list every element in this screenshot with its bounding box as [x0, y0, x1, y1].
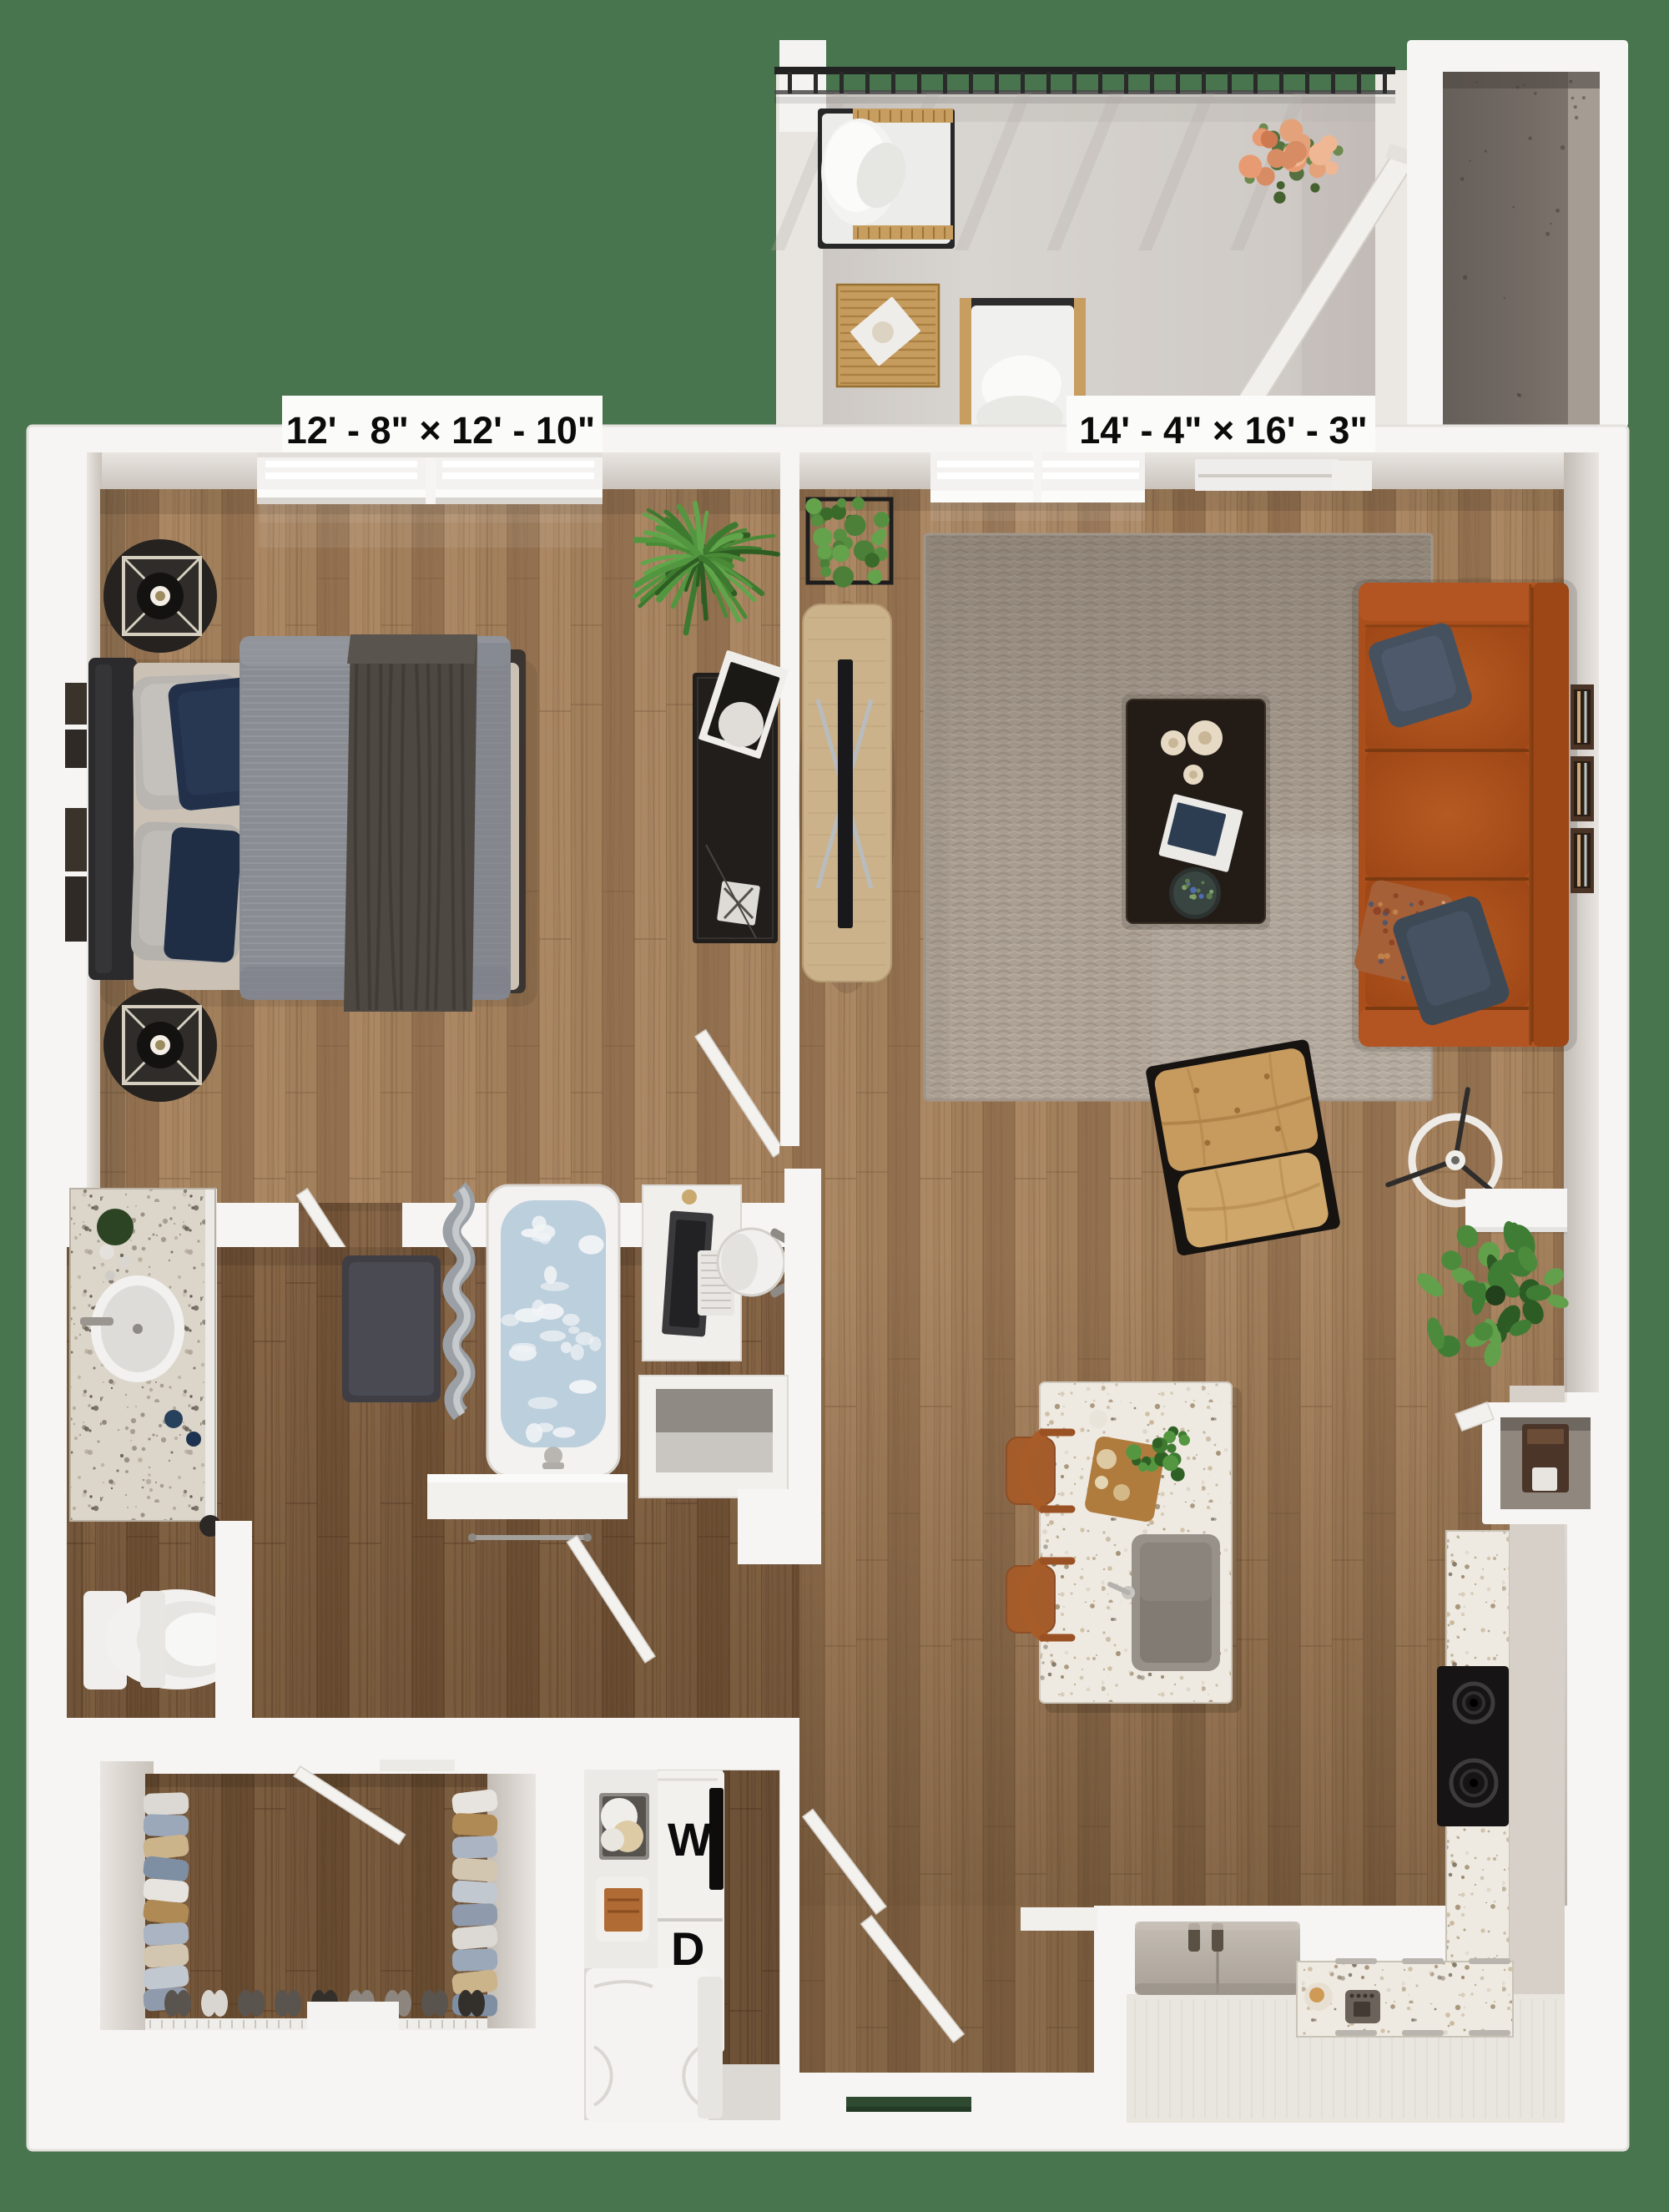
svg-text:W: W	[668, 1813, 712, 1866]
svg-text:14' - 4" × 16' - 3": 14' - 4" × 16' - 3"	[1079, 409, 1368, 452]
svg-text:12' - 8" × 12' - 10": 12' - 8" × 12' - 10"	[286, 409, 596, 452]
svg-text:D: D	[671, 1922, 704, 1975]
